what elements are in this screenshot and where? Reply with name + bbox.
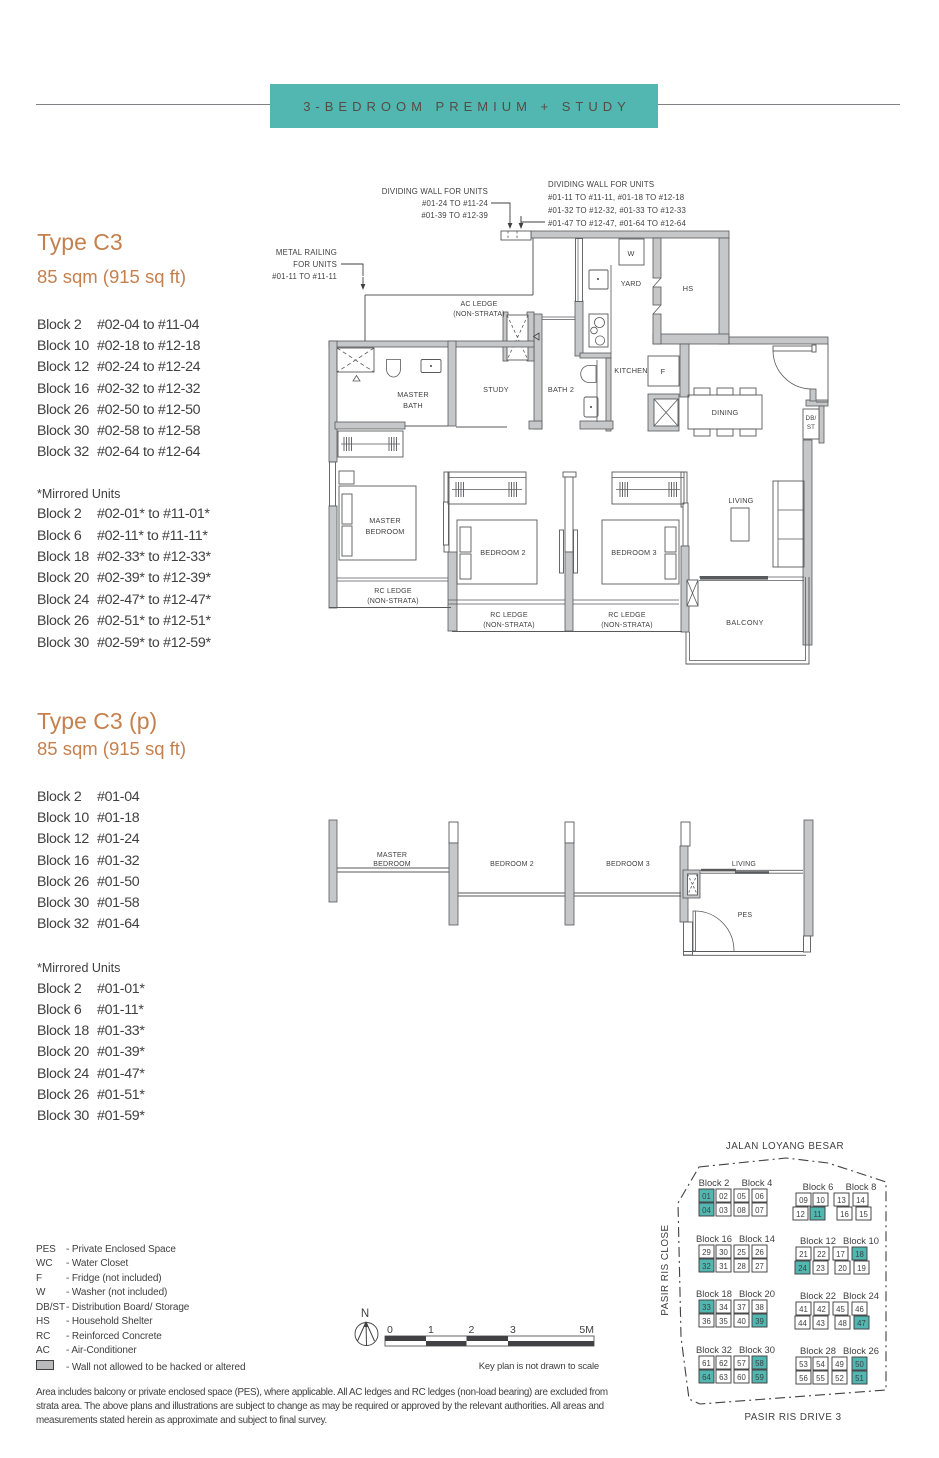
svg-text:36: 36 bbox=[702, 1317, 711, 1326]
svg-text:BATH: BATH bbox=[403, 401, 423, 410]
svg-text:0: 0 bbox=[387, 1324, 393, 1336]
svg-text:(NON-STRATA): (NON-STRATA) bbox=[453, 311, 505, 318]
svg-text:54: 54 bbox=[816, 1360, 825, 1369]
svg-text:YARD: YARD bbox=[621, 279, 642, 288]
svg-text:Block 4: Block 4 bbox=[742, 1177, 773, 1188]
svg-text:21: 21 bbox=[799, 1250, 808, 1259]
svg-text:MASTER: MASTER bbox=[397, 390, 429, 399]
svg-text:18: 18 bbox=[855, 1250, 864, 1259]
svg-text:DB/: DB/ bbox=[806, 415, 817, 422]
svg-text:AC LEDGE: AC LEDGE bbox=[461, 301, 498, 308]
svg-text:27: 27 bbox=[755, 1262, 764, 1271]
svg-text:#01-47 TO #12-47, #01-64 TO #1: #01-47 TO #12-47, #01-64 TO #12-64 bbox=[548, 219, 686, 228]
svg-text:61: 61 bbox=[702, 1359, 711, 1368]
svg-text:ST: ST bbox=[807, 424, 815, 431]
svg-text:17: 17 bbox=[836, 1250, 845, 1259]
svg-text:09: 09 bbox=[799, 1196, 808, 1205]
svg-text:Block 2: Block 2 bbox=[699, 1177, 730, 1188]
svg-text:Block 16: Block 16 bbox=[696, 1233, 732, 1244]
svg-text:RC LEDGE: RC LEDGE bbox=[374, 588, 412, 595]
svg-text:05: 05 bbox=[737, 1192, 746, 1201]
svg-text:44: 44 bbox=[798, 1319, 807, 1328]
svg-text:28: 28 bbox=[737, 1262, 746, 1271]
svg-text:#01-39 TO #12-39: #01-39 TO #12-39 bbox=[421, 211, 488, 220]
svg-text:KITCHEN: KITCHEN bbox=[614, 366, 647, 375]
svg-text:19: 19 bbox=[857, 1264, 866, 1273]
svg-text:BEDROOM: BEDROOM bbox=[373, 861, 411, 868]
svg-text:40: 40 bbox=[737, 1317, 746, 1326]
svg-text:BEDROOM 3: BEDROOM 3 bbox=[606, 861, 650, 868]
svg-text:Block 12: Block 12 bbox=[800, 1235, 836, 1246]
svg-text:20: 20 bbox=[838, 1264, 847, 1273]
svg-text:RC LEDGE: RC LEDGE bbox=[608, 612, 646, 619]
svg-text:58: 58 bbox=[755, 1359, 764, 1368]
svg-text:29: 29 bbox=[702, 1248, 711, 1257]
svg-text:Block 6: Block 6 bbox=[803, 1181, 834, 1192]
svg-text:33: 33 bbox=[702, 1303, 711, 1312]
svg-text:42: 42 bbox=[817, 1305, 826, 1314]
svg-text:43: 43 bbox=[816, 1319, 825, 1328]
svg-text:64: 64 bbox=[702, 1373, 711, 1382]
svg-text:(NON-STRATA): (NON-STRATA) bbox=[601, 622, 653, 629]
svg-text:W: W bbox=[627, 249, 634, 258]
svg-text:39: 39 bbox=[755, 1317, 764, 1326]
svg-text:F: F bbox=[661, 367, 666, 376]
svg-text:BEDROOM 2: BEDROOM 2 bbox=[480, 548, 526, 557]
svg-text:DINING: DINING bbox=[712, 408, 739, 417]
svg-text:14: 14 bbox=[856, 1196, 865, 1205]
svg-text:38: 38 bbox=[755, 1303, 764, 1312]
svg-text:01: 01 bbox=[702, 1192, 711, 1201]
svg-text:RC LEDGE: RC LEDGE bbox=[490, 612, 528, 619]
svg-text:DIVIDING WALL FOR UNITS: DIVIDING WALL FOR UNITS bbox=[548, 180, 654, 189]
svg-text:PES: PES bbox=[738, 912, 753, 919]
svg-text:Block 20: Block 20 bbox=[739, 1288, 775, 1299]
svg-text:Block 18: Block 18 bbox=[696, 1288, 732, 1299]
svg-text:34: 34 bbox=[719, 1303, 728, 1312]
svg-text:03: 03 bbox=[719, 1206, 728, 1215]
svg-text:51: 51 bbox=[855, 1374, 864, 1383]
svg-text:LIVING: LIVING bbox=[732, 861, 756, 868]
svg-text:DIVIDING WALL FOR UNITS: DIVIDING WALL FOR UNITS bbox=[382, 187, 488, 196]
svg-text:07: 07 bbox=[755, 1206, 764, 1215]
svg-text:(NON-STRATA): (NON-STRATA) bbox=[483, 622, 535, 629]
svg-text:JALAN LOYANG BESAR: JALAN LOYANG BESAR bbox=[726, 1141, 844, 1152]
svg-text:26: 26 bbox=[755, 1248, 764, 1257]
svg-text:#01-11 TO #11-11: #01-11 TO #11-11 bbox=[272, 272, 337, 281]
svg-text:METAL RAILING: METAL RAILING bbox=[276, 248, 337, 257]
svg-text:31: 31 bbox=[719, 1262, 728, 1271]
svg-text:62: 62 bbox=[719, 1359, 728, 1368]
svg-text:23: 23 bbox=[816, 1264, 825, 1273]
svg-text:30: 30 bbox=[719, 1248, 728, 1257]
svg-text:N: N bbox=[361, 1308, 369, 1320]
svg-text:Block 10: Block 10 bbox=[843, 1235, 879, 1246]
svg-text:24: 24 bbox=[798, 1264, 807, 1273]
svg-text:55: 55 bbox=[816, 1374, 825, 1383]
svg-text:BEDROOM: BEDROOM bbox=[365, 527, 404, 536]
svg-text:49: 49 bbox=[835, 1360, 844, 1369]
svg-text:02: 02 bbox=[719, 1192, 728, 1201]
svg-text:48: 48 bbox=[838, 1319, 847, 1328]
svg-text:60: 60 bbox=[737, 1373, 746, 1382]
svg-text:13: 13 bbox=[837, 1196, 846, 1205]
svg-text:53: 53 bbox=[799, 1360, 808, 1369]
svg-text:MASTER: MASTER bbox=[377, 852, 407, 859]
svg-text:Block 24: Block 24 bbox=[843, 1290, 879, 1301]
svg-text:BALCONY: BALCONY bbox=[726, 618, 764, 627]
svg-text:63: 63 bbox=[719, 1373, 728, 1382]
svg-text:11: 11 bbox=[813, 1210, 821, 1219]
svg-text:35: 35 bbox=[719, 1317, 728, 1326]
svg-text:12: 12 bbox=[796, 1210, 805, 1219]
svg-text:52: 52 bbox=[835, 1374, 844, 1383]
svg-text:41: 41 bbox=[799, 1305, 808, 1314]
svg-text:BEDROOM 3: BEDROOM 3 bbox=[611, 548, 657, 557]
svg-text:45: 45 bbox=[836, 1305, 845, 1314]
svg-text:#01-24 TO #11-24: #01-24 TO #11-24 bbox=[422, 199, 489, 208]
svg-text:STUDY: STUDY bbox=[483, 385, 509, 394]
svg-text:1: 1 bbox=[428, 1324, 434, 1336]
svg-text:PASIR RIS DRIVE 3: PASIR RIS DRIVE 3 bbox=[744, 1412, 841, 1423]
svg-text:2: 2 bbox=[469, 1324, 475, 1336]
svg-text:57: 57 bbox=[737, 1359, 746, 1368]
svg-text:59: 59 bbox=[755, 1373, 764, 1382]
svg-text:Block 14: Block 14 bbox=[739, 1233, 775, 1244]
svg-text:PASIR RIS CLOSE: PASIR RIS CLOSE bbox=[660, 1224, 671, 1315]
svg-text:LIVING: LIVING bbox=[728, 496, 753, 505]
svg-text:37: 37 bbox=[737, 1303, 746, 1312]
svg-text:Block 32: Block 32 bbox=[696, 1344, 732, 1355]
svg-text:10: 10 bbox=[816, 1196, 825, 1205]
svg-text:(NON-STRATA): (NON-STRATA) bbox=[367, 598, 419, 605]
svg-text:25: 25 bbox=[737, 1248, 746, 1257]
svg-text:06: 06 bbox=[755, 1192, 764, 1201]
svg-text:3: 3 bbox=[510, 1324, 516, 1336]
svg-text:5M: 5M bbox=[579, 1324, 594, 1336]
svg-text:MASTER: MASTER bbox=[369, 516, 401, 525]
svg-text:15: 15 bbox=[859, 1210, 868, 1219]
svg-text:08: 08 bbox=[737, 1206, 746, 1215]
svg-text:Block 26: Block 26 bbox=[843, 1345, 879, 1356]
svg-text:50: 50 bbox=[855, 1360, 864, 1369]
svg-text:32: 32 bbox=[702, 1262, 711, 1271]
svg-text:Block 22: Block 22 bbox=[800, 1290, 836, 1301]
svg-text:Block 28: Block 28 bbox=[800, 1345, 836, 1356]
svg-text:56: 56 bbox=[799, 1374, 808, 1383]
svg-text:47: 47 bbox=[857, 1319, 866, 1328]
svg-text:#01-11 TO #11-11, #01-18 TO #1: #01-11 TO #11-11, #01-18 TO #12-18 bbox=[548, 193, 684, 202]
svg-text:BATH 2: BATH 2 bbox=[548, 385, 574, 394]
svg-text:22: 22 bbox=[817, 1250, 826, 1259]
svg-text:FOR UNITS: FOR UNITS bbox=[293, 260, 337, 269]
svg-text:HS: HS bbox=[683, 284, 694, 293]
svg-text:16: 16 bbox=[840, 1210, 849, 1219]
svg-text:Block 30: Block 30 bbox=[739, 1344, 775, 1355]
svg-text:Block 8: Block 8 bbox=[846, 1181, 877, 1192]
svg-text:BEDROOM 2: BEDROOM 2 bbox=[490, 861, 534, 868]
svg-text:46: 46 bbox=[855, 1305, 864, 1314]
svg-text:#01-32 TO #12-32, #01-33 TO #1: #01-32 TO #12-32, #01-33 TO #12-33 bbox=[548, 206, 686, 215]
svg-text:04: 04 bbox=[702, 1206, 711, 1215]
